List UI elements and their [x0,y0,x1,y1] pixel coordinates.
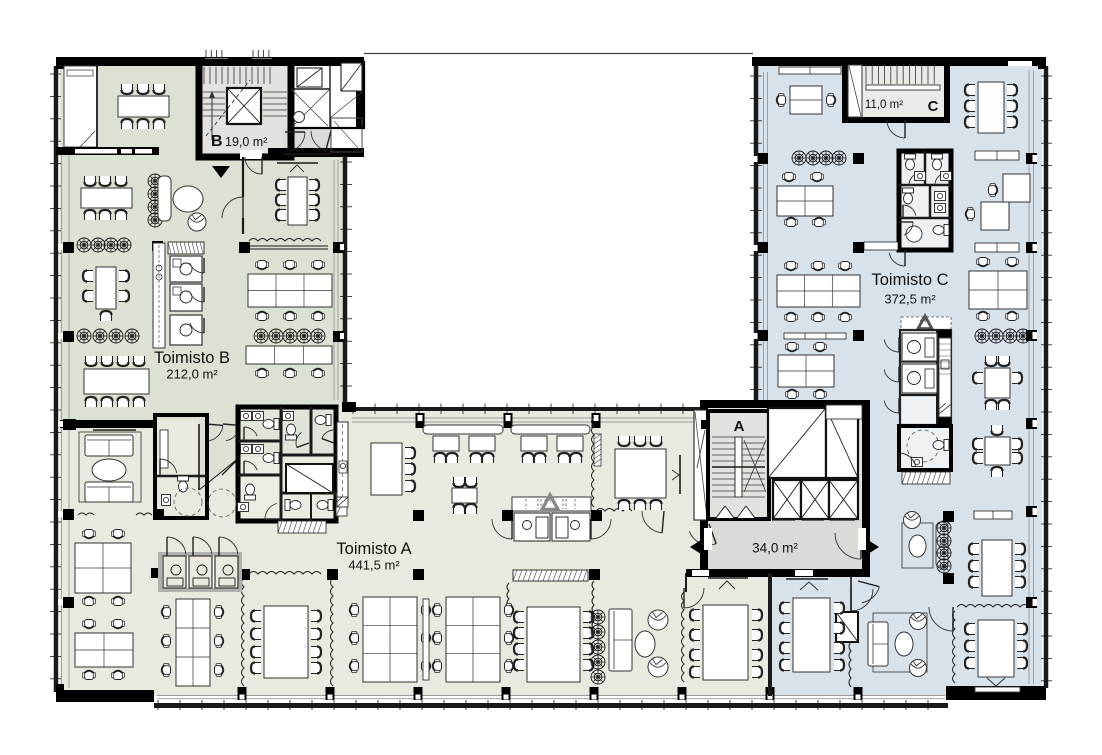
svg-text:212,0 m²: 212,0 m² [166,367,218,382]
svg-text:11,0 m²: 11,0 m² [865,99,903,111]
svg-text:Toimisto A: Toimisto A [336,540,411,558]
svg-text:372,5 m²: 372,5 m² [884,292,936,307]
svg-text:A: A [734,418,745,435]
svg-text:C: C [928,98,939,115]
svg-text:19,0 m²: 19,0 m² [225,135,267,149]
svg-text:441,5 m²: 441,5 m² [348,558,400,573]
svg-text:Toimisto B: Toimisto B [154,349,230,367]
svg-text:34,0 m²: 34,0 m² [752,541,798,556]
svg-text:Toimisto C: Toimisto C [871,271,948,289]
svg-text:B: B [211,133,223,150]
